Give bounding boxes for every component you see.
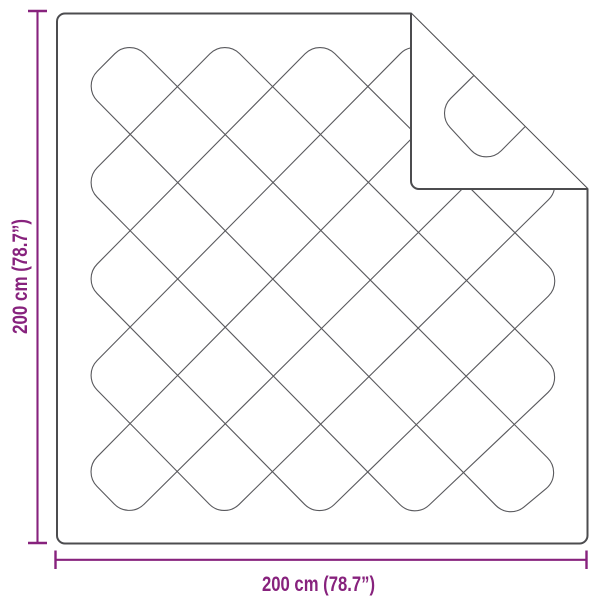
svg-text:200 cm (78.7”): 200 cm (78.7”) xyxy=(8,219,32,334)
svg-text:200 cm (78.7”): 200 cm (78.7”) xyxy=(262,572,375,596)
